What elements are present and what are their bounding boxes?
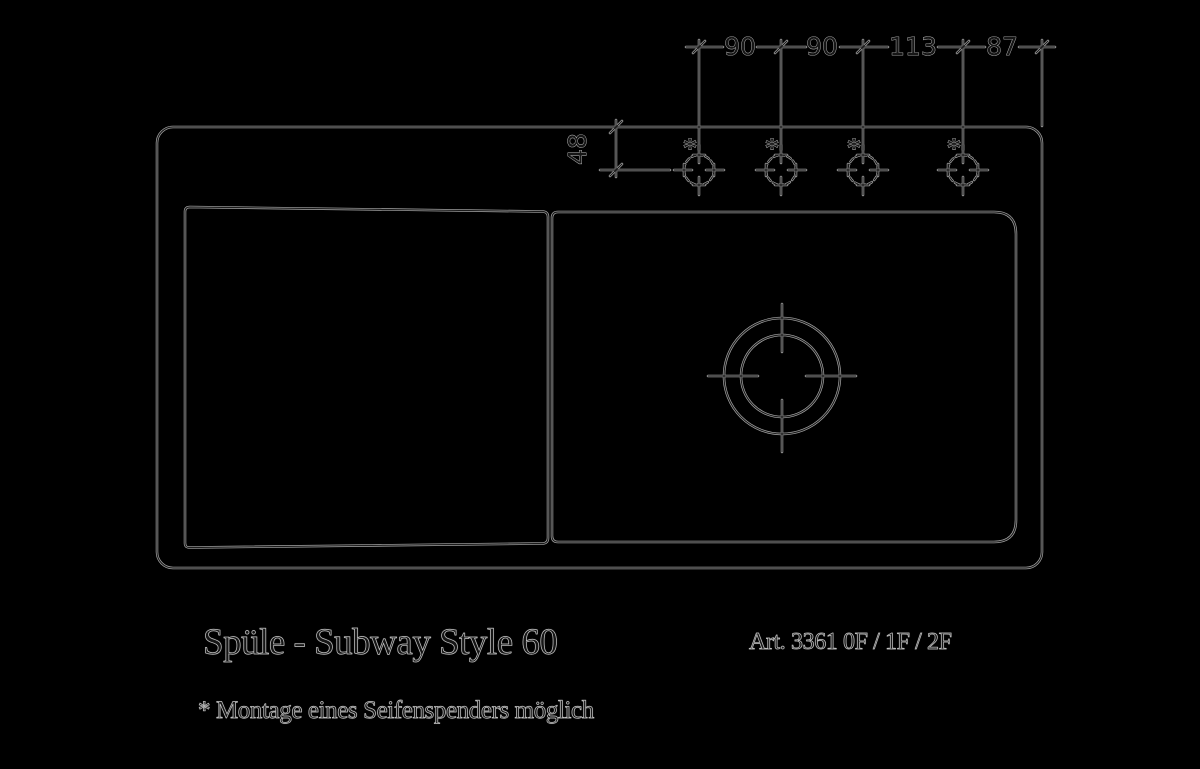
dim-label-side: 48 (563, 133, 592, 165)
drawing-title: Spüle - Subway Style 60 (203, 621, 557, 664)
drawing-core-layer (157, 40, 1055, 568)
footnote: * Montage eines Seifenspenders möglich (198, 697, 594, 725)
dim-label-2: 90 (806, 32, 838, 61)
asterisk-icon: * (947, 132, 962, 165)
dim-label-3: 113 (889, 32, 937, 61)
sink-drawing: 90 90 113 87 48 * * * * (0, 0, 1200, 769)
dim-label-1: 90 (724, 32, 756, 61)
article-number: Art. 3361 0F / 1F / 2F (749, 629, 952, 656)
asterisk-icon: * (847, 132, 862, 165)
asterisk-icon: * (683, 132, 698, 165)
dim-label-4: 87 (986, 32, 1018, 61)
drawing-halo-layer (157, 40, 1055, 568)
hole-footnote-markers: * * * * (683, 132, 962, 165)
asterisk-icon: * (765, 132, 780, 165)
technical-drawing-canvas: 90 90 113 87 48 * * * * Spüle - Subway S… (0, 0, 1200, 769)
